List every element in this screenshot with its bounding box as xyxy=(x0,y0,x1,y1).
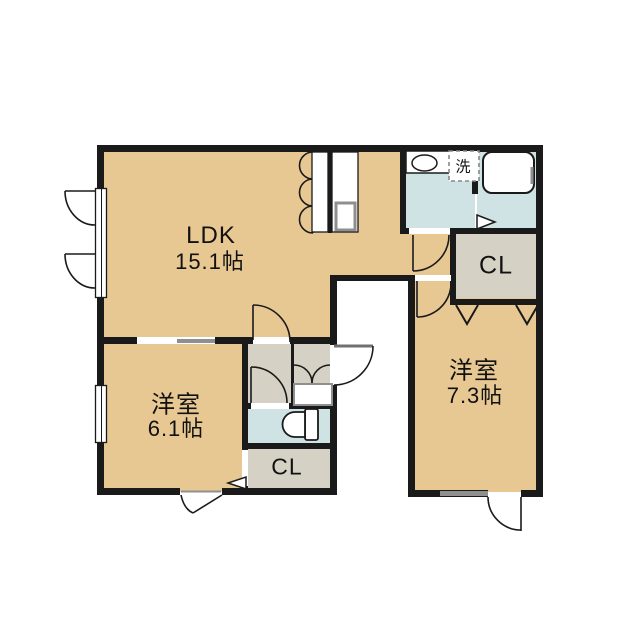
closet-south-label: CL xyxy=(271,454,302,481)
bathtub-icon xyxy=(483,152,534,193)
bedroom-west-outswing-window-icon xyxy=(181,492,222,514)
bath-door-arrow-icon xyxy=(477,215,495,229)
bedroom-east-area-label: 7.3帖 xyxy=(447,378,504,410)
toilet-door-icon xyxy=(251,367,287,403)
bedroom-east-door-icon xyxy=(417,281,451,317)
kitchen-counter-icon xyxy=(300,152,359,233)
closet-east-folding-door-icon xyxy=(456,305,538,324)
closet-east-label: CL xyxy=(479,252,513,281)
closet-south-door-arrow-icon xyxy=(228,477,246,489)
floor-plan: LDK 15.1帖 洋室 6.1帖 洋室 7.3帖 CL CL 洗 xyxy=(0,0,640,640)
shoe-cabinet-icon xyxy=(294,365,332,405)
laundry-label: 洗 xyxy=(455,156,470,177)
ldk-area-label: 15.1帖 xyxy=(175,244,245,276)
toilet-icon xyxy=(283,409,319,440)
washroom-door-icon xyxy=(413,235,449,271)
ldk-window-icon xyxy=(65,189,107,298)
exterior-door-icon xyxy=(488,497,521,531)
entrance-door-icon xyxy=(334,346,373,385)
plan-symbols xyxy=(0,0,640,640)
hall-door-icon xyxy=(253,305,290,342)
washbasin-icon xyxy=(406,151,452,173)
bedroom-west-window-icon xyxy=(96,386,107,443)
bedroom-west-area-label: 6.1帖 xyxy=(148,411,205,443)
